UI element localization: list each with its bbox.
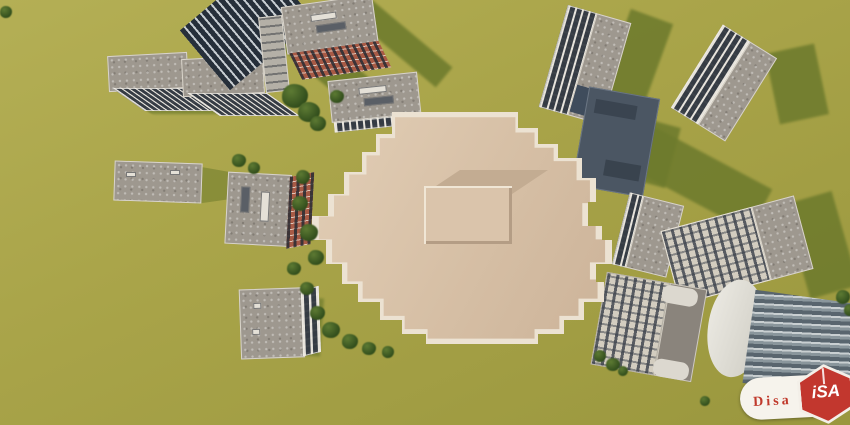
rooftop-unit xyxy=(126,172,136,177)
low-building-roof xyxy=(113,160,202,203)
low-building xyxy=(114,160,210,208)
tree xyxy=(844,304,850,316)
southwest-block xyxy=(239,287,328,366)
rooftop-penthouse xyxy=(424,186,512,244)
tree xyxy=(296,170,310,184)
tree xyxy=(0,6,12,18)
tree xyxy=(248,162,260,174)
white-block-2 xyxy=(671,24,777,141)
southwest-block-facade xyxy=(301,286,321,356)
southwest-block-roof xyxy=(239,287,305,359)
red-block xyxy=(224,172,320,257)
tree xyxy=(300,224,318,241)
rooftop-unit xyxy=(170,170,180,175)
brick-building xyxy=(281,0,387,88)
red-block-roof xyxy=(224,172,292,247)
rooftop-unit xyxy=(240,186,250,212)
rooftop-unit xyxy=(260,191,271,221)
tree xyxy=(310,306,325,320)
tree xyxy=(362,342,376,355)
tree xyxy=(330,90,344,103)
rooftop-unit xyxy=(253,303,261,309)
render-canvas: دیـــسا Disa مگ iSA xyxy=(0,0,850,425)
tree xyxy=(342,334,358,349)
tree xyxy=(308,250,324,265)
tree xyxy=(292,196,308,211)
navy-roof-unit xyxy=(603,159,641,181)
tree xyxy=(594,350,606,362)
tree xyxy=(287,262,301,275)
tree xyxy=(382,346,394,358)
tree xyxy=(300,282,314,295)
slab-a-roof xyxy=(107,52,189,92)
tree xyxy=(618,366,628,376)
navy-roof-unit xyxy=(594,99,638,120)
tree xyxy=(700,396,710,406)
tree xyxy=(310,116,326,131)
white-block-shadow xyxy=(765,44,829,125)
tree xyxy=(322,322,340,338)
rooftop-unit xyxy=(252,329,260,335)
tree xyxy=(232,154,246,167)
tree xyxy=(836,290,850,304)
watermark-latin-text: Disa xyxy=(753,393,792,411)
